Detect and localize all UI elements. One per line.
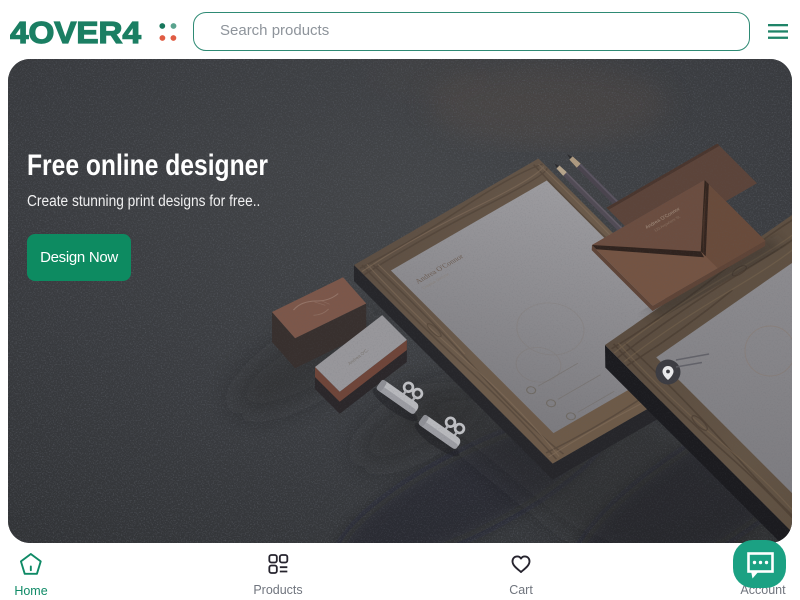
svg-text:4OVER4: 4OVER4 bbox=[10, 15, 142, 48]
